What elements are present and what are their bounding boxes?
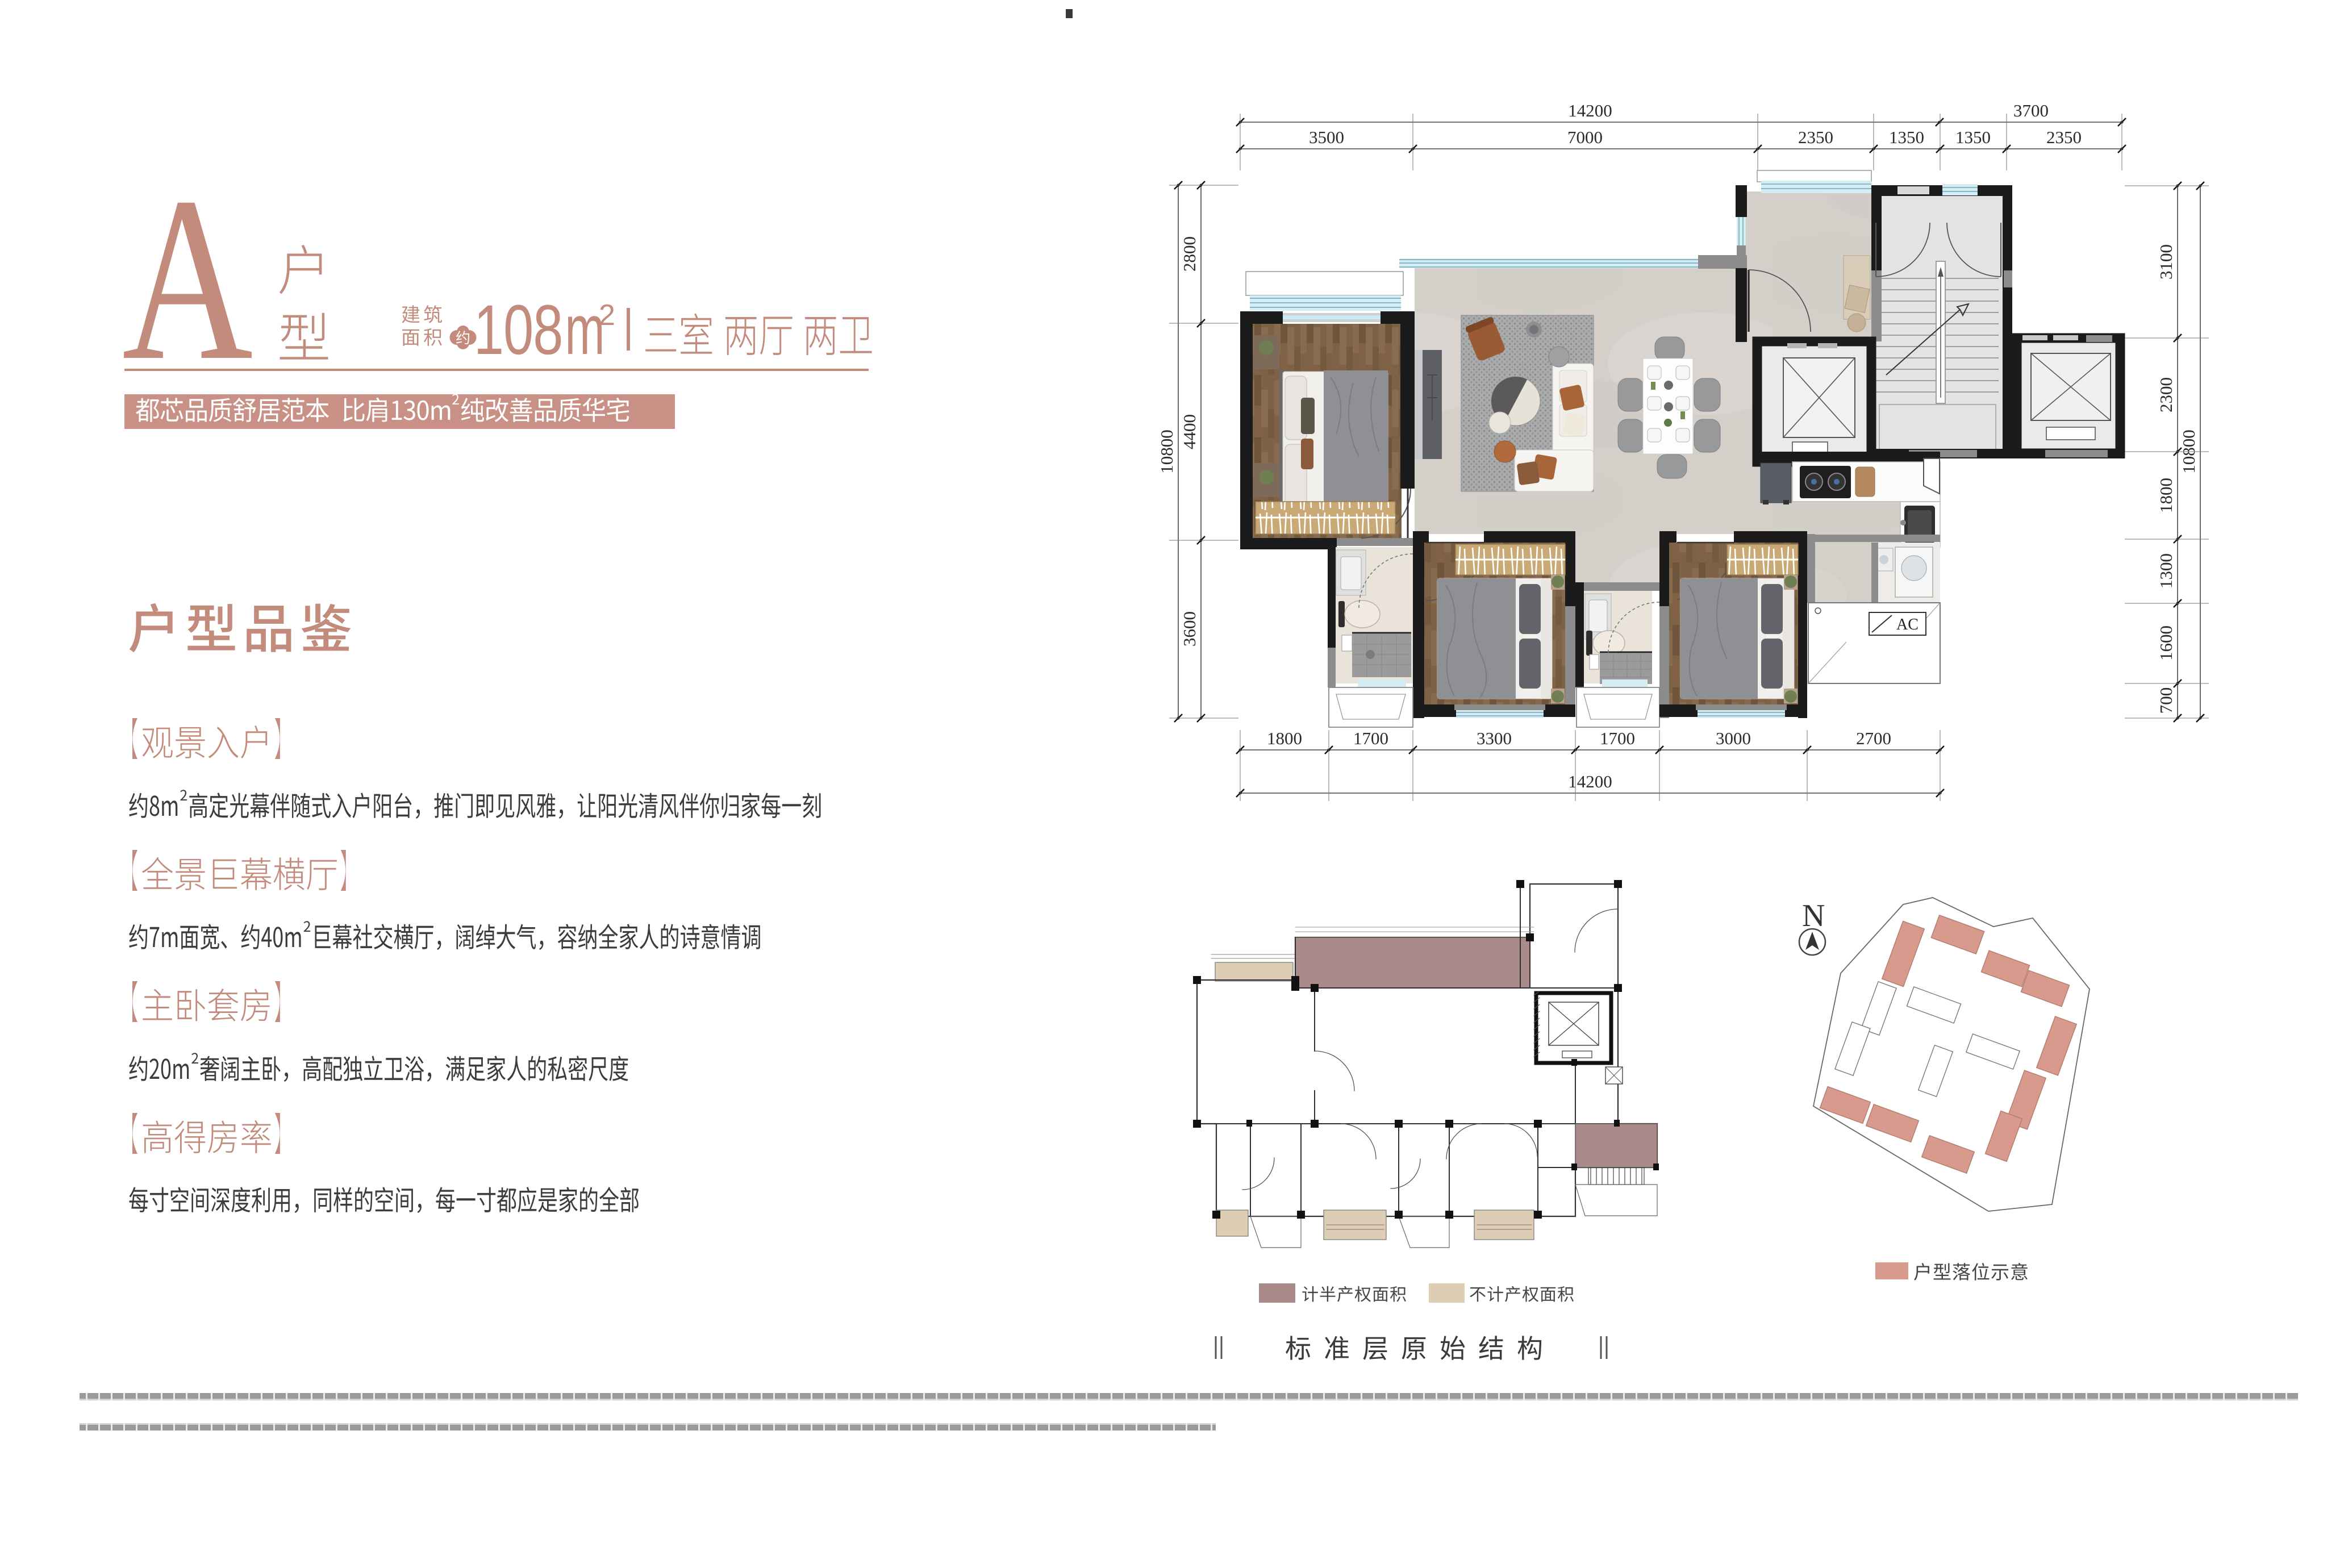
svg-text:2700: 2700: [1856, 728, 1891, 748]
svg-text:14200: 14200: [1568, 772, 1612, 791]
svg-text:1600: 1600: [2156, 625, 2176, 661]
svg-text:3700: 3700: [2013, 101, 2049, 120]
svg-text:1800: 1800: [1267, 728, 1302, 748]
svg-text:1700: 1700: [1353, 728, 1388, 748]
svg-text:700: 700: [2156, 687, 2176, 714]
svg-text:AC: AC: [1896, 616, 1919, 633]
svg-text:3600: 3600: [1179, 611, 1199, 647]
svg-text:10800: 10800: [1157, 429, 1177, 474]
svg-text:3100: 3100: [2156, 244, 2176, 280]
svg-text:N: N: [1802, 898, 1825, 933]
svg-text:2350: 2350: [1798, 127, 1833, 147]
svg-text:7000: 7000: [1567, 127, 1603, 147]
svg-text:1700: 1700: [1600, 728, 1635, 748]
svg-text:4400: 4400: [1179, 414, 1199, 449]
svg-text:2350: 2350: [2046, 127, 2082, 147]
svg-text:1300: 1300: [2156, 553, 2176, 589]
svg-text:2300: 2300: [2156, 377, 2176, 412]
svg-text:1800: 1800: [2156, 478, 2176, 513]
svg-text:14200: 14200: [1568, 101, 1612, 120]
svg-text:1350: 1350: [1889, 127, 1924, 147]
svg-text:2800: 2800: [1179, 236, 1199, 272]
svg-text:3000: 3000: [1716, 728, 1751, 748]
svg-text:3300: 3300: [1477, 728, 1512, 748]
svg-text:3500: 3500: [1309, 127, 1344, 147]
svg-text:1350: 1350: [1955, 127, 1991, 147]
